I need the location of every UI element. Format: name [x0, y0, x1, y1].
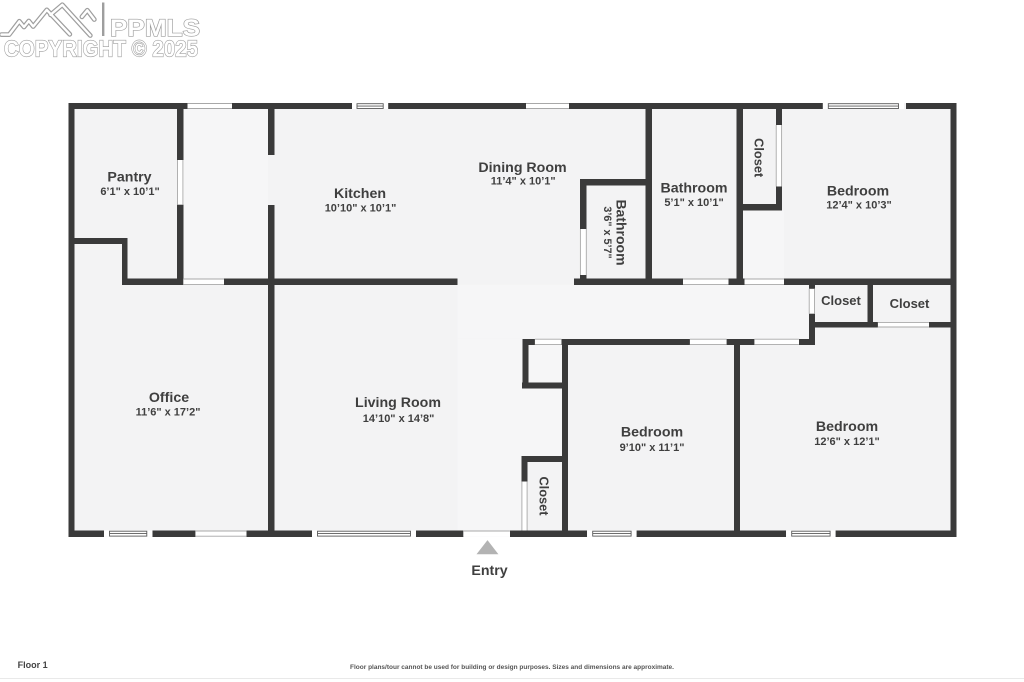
svg-text:10’10" x 10’1": 10’10" x 10’1": [325, 203, 397, 215]
svg-text:Bathroom: Bathroom: [613, 199, 629, 265]
svg-text:Closet: Closet: [890, 296, 930, 311]
svg-text:5’1" x 10’1": 5’1" x 10’1": [664, 197, 723, 209]
svg-text:Bedroom: Bedroom: [827, 183, 889, 199]
svg-text:Kitchen: Kitchen: [334, 186, 386, 202]
svg-text:Bedroom: Bedroom: [621, 424, 683, 440]
svg-text:14’10" x 14’8": 14’10" x 14’8": [363, 413, 435, 425]
svg-text:Office: Office: [149, 390, 189, 406]
svg-text:11’6" x 17’2": 11’6" x 17’2": [136, 407, 201, 419]
svg-text:Closet: Closet: [536, 476, 551, 516]
svg-text:Pantry: Pantry: [107, 169, 151, 185]
svg-text:11’4" x 10’1": 11’4" x 10’1": [491, 175, 556, 187]
svg-text:Floor 1: Floor 1: [18, 660, 48, 670]
svg-text:Bathroom: Bathroom: [661, 180, 728, 196]
svg-text:Entry: Entry: [471, 563, 507, 579]
svg-text:9’10" x 11’1": 9’10" x 11’1": [620, 442, 685, 454]
svg-text:Closet: Closet: [821, 293, 861, 308]
svg-text:Bedroom: Bedroom: [816, 419, 878, 435]
svg-text:Dining Room: Dining Room: [478, 160, 566, 176]
svg-text:Living Room: Living Room: [355, 395, 441, 411]
svg-text:12’6" x 12’1": 12’6" x 12’1": [814, 436, 879, 448]
svg-text:Floor plans/tour cannot be use: Floor plans/tour cannot be used for buil…: [350, 664, 674, 671]
svg-text:Closet: Closet: [751, 138, 766, 178]
svg-text:COPYRIGHT © 2025: COPYRIGHT © 2025: [4, 35, 198, 61]
svg-text:6’1" x 10’1": 6’1" x 10’1": [100, 186, 159, 198]
svg-text:12’4" x 10’3": 12’4" x 10’3": [826, 200, 891, 212]
svg-text:3’6" x 5’7": 3’6" x 5’7": [601, 206, 613, 258]
